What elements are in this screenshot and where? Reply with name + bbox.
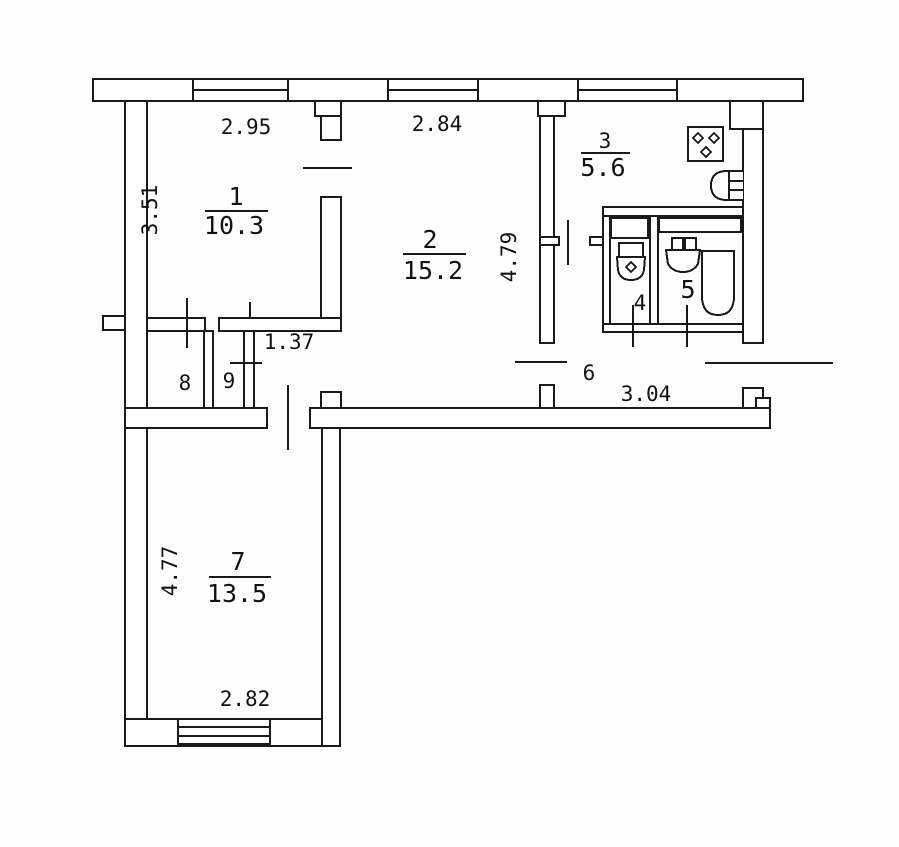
bathroom-shelf	[659, 218, 741, 232]
wall-room2-right-lower	[540, 385, 554, 408]
wall-room4-left	[603, 216, 610, 332]
room1-number: 1	[228, 182, 243, 211]
wall-room9-hall	[244, 331, 254, 408]
bath-block-bottom-wall	[603, 324, 743, 332]
room5-number: 5	[680, 275, 695, 304]
toilet-icon	[617, 243, 645, 280]
walls	[93, 79, 803, 746]
dim-room6-width: 3.04	[621, 382, 672, 406]
left-wall-stub	[103, 316, 125, 330]
room7-number: 7	[230, 547, 245, 576]
dim-hall-width: 1.37	[264, 330, 315, 354]
floor-plan-svg: 2.95 3.51 1 10.3 2.84 2 15.2 4.79 3 5.6 …	[0, 0, 899, 847]
pillar-room2-room3	[538, 101, 565, 116]
room9-number: 9	[223, 369, 236, 393]
dim-room1-height: 3.51	[138, 185, 162, 236]
room1-area: 10.3	[204, 211, 264, 240]
window-icon	[578, 79, 677, 101]
room7-right-wall	[322, 428, 340, 746]
fixtures	[611, 127, 743, 315]
kitchen-sink-icon	[711, 171, 743, 200]
room6-number: 6	[583, 361, 596, 385]
room7-area: 13.5	[207, 579, 267, 608]
bathtub-icon	[702, 251, 734, 315]
vent-shaft	[730, 101, 763, 129]
window-icon	[178, 719, 270, 744]
wc-shelf	[611, 218, 648, 238]
pillar-room1-room2	[315, 101, 341, 116]
bottom-thick-wall-step	[756, 398, 770, 408]
kitchen-bottom-wall	[603, 207, 743, 216]
wall-room4-room5	[650, 216, 658, 332]
wall-room1-room2-upper	[321, 116, 341, 140]
dim-room7-width: 2.82	[220, 687, 271, 711]
room2-number: 2	[422, 225, 437, 254]
room4-number: 4	[634, 291, 647, 315]
bottom-thick-wall-left	[125, 408, 267, 428]
stove-icon	[688, 127, 723, 161]
right-exterior-wall-upper	[743, 101, 763, 343]
dim-room7-height: 4.77	[158, 546, 182, 597]
room3-area: 5.6	[580, 153, 625, 182]
room3-number: 3	[599, 129, 612, 153]
wall-room8-room9	[204, 331, 213, 408]
room2-area: 15.2	[403, 256, 463, 285]
floor-plan: 2.95 3.51 1 10.3 2.84 2 15.2 4.79 3 5.6 …	[0, 0, 899, 847]
wall-room2-right-upper	[540, 116, 554, 343]
bottom-thick-wall-right	[310, 408, 770, 428]
kitchen-door-jamb-left	[540, 237, 559, 245]
window-icon	[193, 79, 288, 101]
room8-number: 8	[179, 371, 192, 395]
window-icon	[388, 79, 478, 101]
kitchen-door-jamb-right	[590, 237, 603, 245]
dim-room2-width: 2.84	[412, 112, 463, 136]
room1-bottom-wall-left	[147, 318, 205, 331]
wall-room1-room2-lower	[321, 197, 341, 331]
wall-room2-left-stub	[321, 392, 341, 408]
washbasin-icon	[666, 238, 700, 272]
dim-room2-height: 4.79	[497, 232, 521, 283]
dim-room1-width: 2.95	[221, 115, 272, 139]
